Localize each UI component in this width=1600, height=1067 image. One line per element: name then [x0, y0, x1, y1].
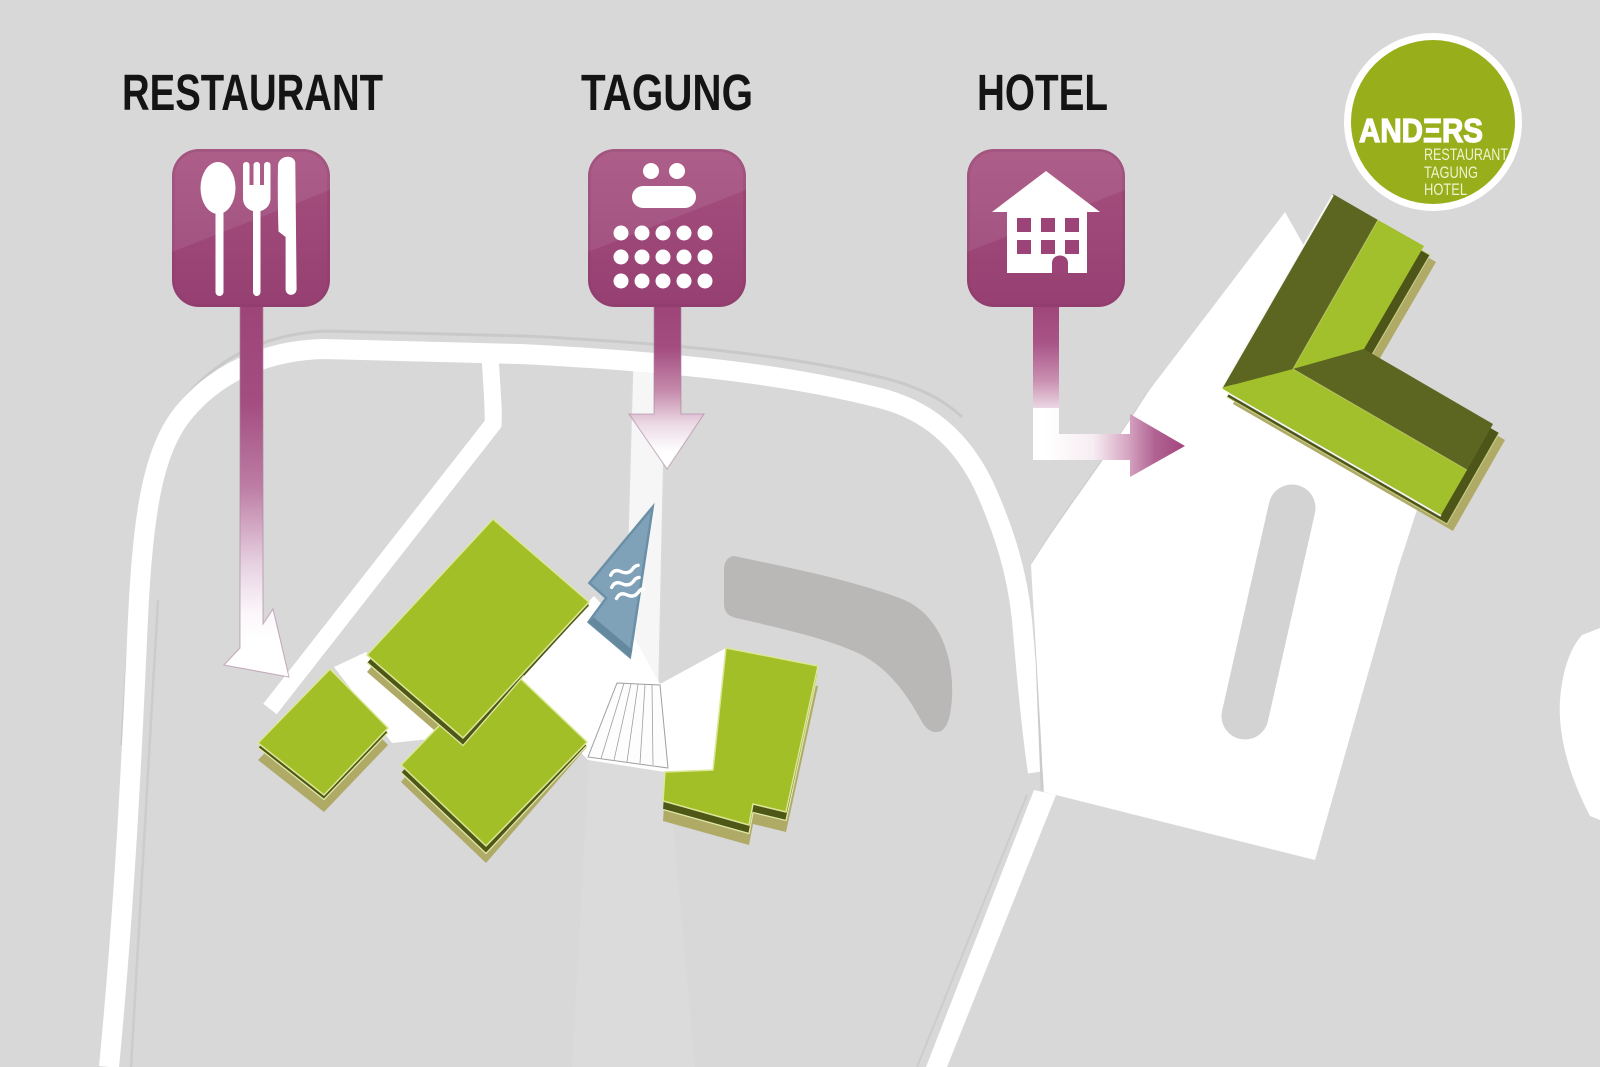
svg-text:RESTAURANT: RESTAURANT [122, 64, 383, 121]
svg-text:HOTEL: HOTEL [977, 64, 1108, 121]
svg-text:HOTEL: HOTEL [1424, 180, 1467, 199]
svg-text:RESTAURANT: RESTAURANT [1424, 145, 1508, 164]
svg-text:TAGUNG: TAGUNG [581, 64, 753, 121]
svg-text:ANDΞRS: ANDΞRS [1359, 112, 1483, 149]
